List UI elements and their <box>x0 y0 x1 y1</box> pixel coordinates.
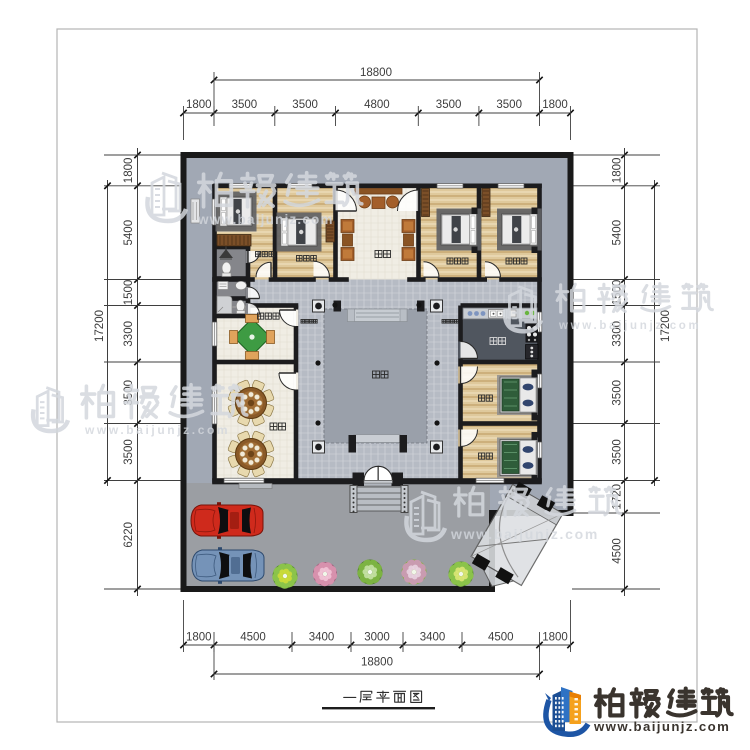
svg-text:5400: 5400 <box>123 220 135 246</box>
svg-text:www.baijunjz.com: www.baijunjz.com <box>593 719 730 734</box>
svg-text:18800: 18800 <box>361 657 393 669</box>
svg-text:1800: 1800 <box>186 632 212 644</box>
svg-text:3500: 3500 <box>612 380 624 406</box>
svg-text:www.baijunjz.com: www.baijunjz.com <box>84 423 230 437</box>
svg-text:1800: 1800 <box>612 158 624 184</box>
svg-text:4500: 4500 <box>488 632 514 644</box>
svg-text:4500: 4500 <box>240 632 266 644</box>
svg-text:1800: 1800 <box>542 632 568 644</box>
svg-text:1500: 1500 <box>123 280 135 306</box>
svg-text:3500: 3500 <box>123 439 135 465</box>
svg-text:3400: 3400 <box>309 632 335 644</box>
svg-text:3500: 3500 <box>612 439 624 465</box>
svg-text:18800: 18800 <box>360 67 392 79</box>
svg-text:3500: 3500 <box>496 99 522 111</box>
svg-text:www.baijunjz.com: www.baijunjz.com <box>197 212 334 227</box>
svg-text:3500: 3500 <box>436 99 462 111</box>
svg-text:3000: 3000 <box>364 632 390 644</box>
svg-text:5400: 5400 <box>612 220 624 246</box>
svg-text:www.baijunjz.com: www.baijunjz.com <box>558 320 701 332</box>
svg-text:6220: 6220 <box>123 522 135 548</box>
svg-text:3500: 3500 <box>232 99 258 111</box>
svg-text:4500: 4500 <box>612 538 624 564</box>
svg-text:www.baijunjz.com: www.baijunjz.com <box>450 526 599 542</box>
svg-text:1800: 1800 <box>542 99 568 111</box>
svg-text:4800: 4800 <box>364 99 390 111</box>
svg-text:3300: 3300 <box>123 321 135 347</box>
svg-text:17200: 17200 <box>94 310 106 342</box>
svg-text:1800: 1800 <box>123 158 135 184</box>
svg-text:1800: 1800 <box>186 99 212 111</box>
svg-text:3500: 3500 <box>292 99 318 111</box>
svg-text:3400: 3400 <box>420 632 446 644</box>
